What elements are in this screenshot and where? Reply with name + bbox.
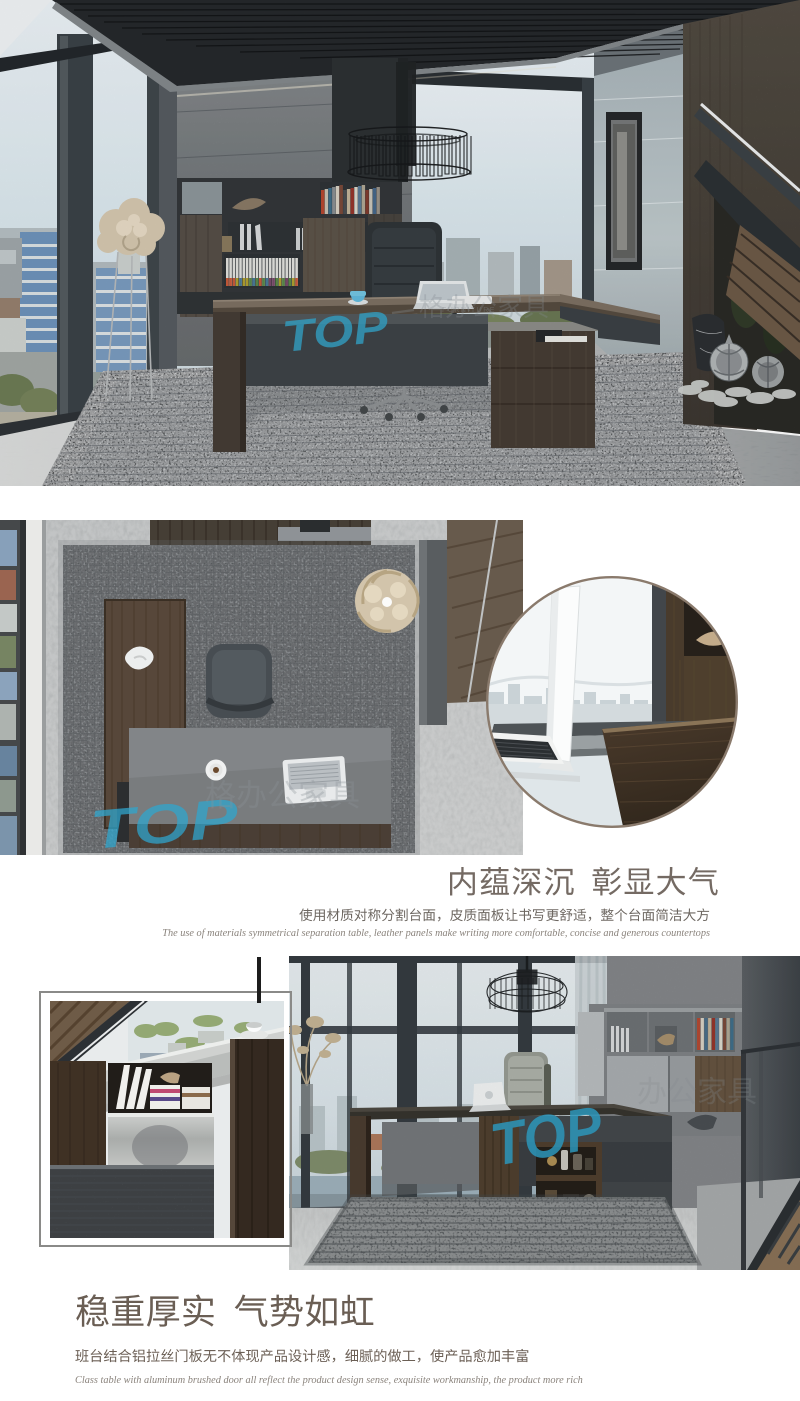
svg-text:Class table with aluminum brus: Class table with aluminum brushed door a… <box>75 1375 583 1386</box>
svg-text:The use of materials symmetric: The use of materials symmetrical separat… <box>162 928 710 939</box>
